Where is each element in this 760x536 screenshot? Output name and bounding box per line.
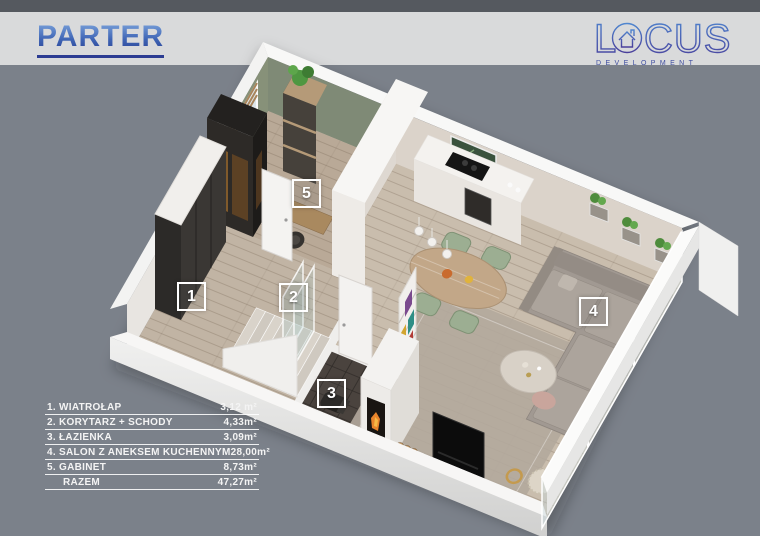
legend-value: 3,09m² (224, 432, 258, 443)
right-return-wall (699, 222, 738, 316)
gabinet-door (262, 169, 292, 261)
legend-row-lazienka: 3. ŁAZIENKA 3,09m² (45, 430, 259, 445)
legend-row-razem: RAZEM 47,27m² (45, 475, 259, 490)
legend-label: 1. WIATROŁAP (47, 402, 122, 413)
legend-row-salon: 4. SALON Z ANEKSEM KUCHENNYM 28,00m² (45, 445, 259, 460)
legend-label: 3. ŁAZIENKA (47, 432, 112, 443)
legend-label: 4. SALON Z ANEKSEM KUCHENNYM (47, 447, 231, 458)
legend-label: 5. GABINET (47, 462, 106, 473)
legend-value: 28,00m² (231, 447, 270, 458)
room-badge-2: 2 (279, 283, 308, 312)
legend-row-gabinet: 5. GABINET 8,73m² (45, 460, 259, 475)
legend-value: 47,27m² (218, 477, 257, 488)
legend-label: RAZEM (47, 477, 100, 488)
legend-value: 8,73m² (224, 462, 258, 473)
bathroom-door (339, 275, 372, 366)
room-badge-1: 1 (177, 282, 206, 311)
area-legend: 1. WIATROŁAP 3,12 m² 2. KORYTARZ + SCHOD… (45, 400, 259, 490)
room-badge-5: 5 (292, 179, 321, 208)
page: PARTER L CUS DEVELOPMENT (0, 0, 760, 536)
room-badge-3: 3 (317, 379, 346, 408)
legend-label: 2. KORYTARZ + SCHODY (47, 417, 173, 428)
legend-value: 3,12 m² (220, 402, 257, 413)
legend-row-wiatrolap: 1. WIATROŁAP 3,12 m² (45, 400, 259, 415)
legend-value: 4,33m² (224, 417, 258, 428)
room-badge-4: 4 (579, 297, 608, 326)
legend-row-korytarz: 2. KORYTARZ + SCHODY 4,33m² (45, 415, 259, 430)
